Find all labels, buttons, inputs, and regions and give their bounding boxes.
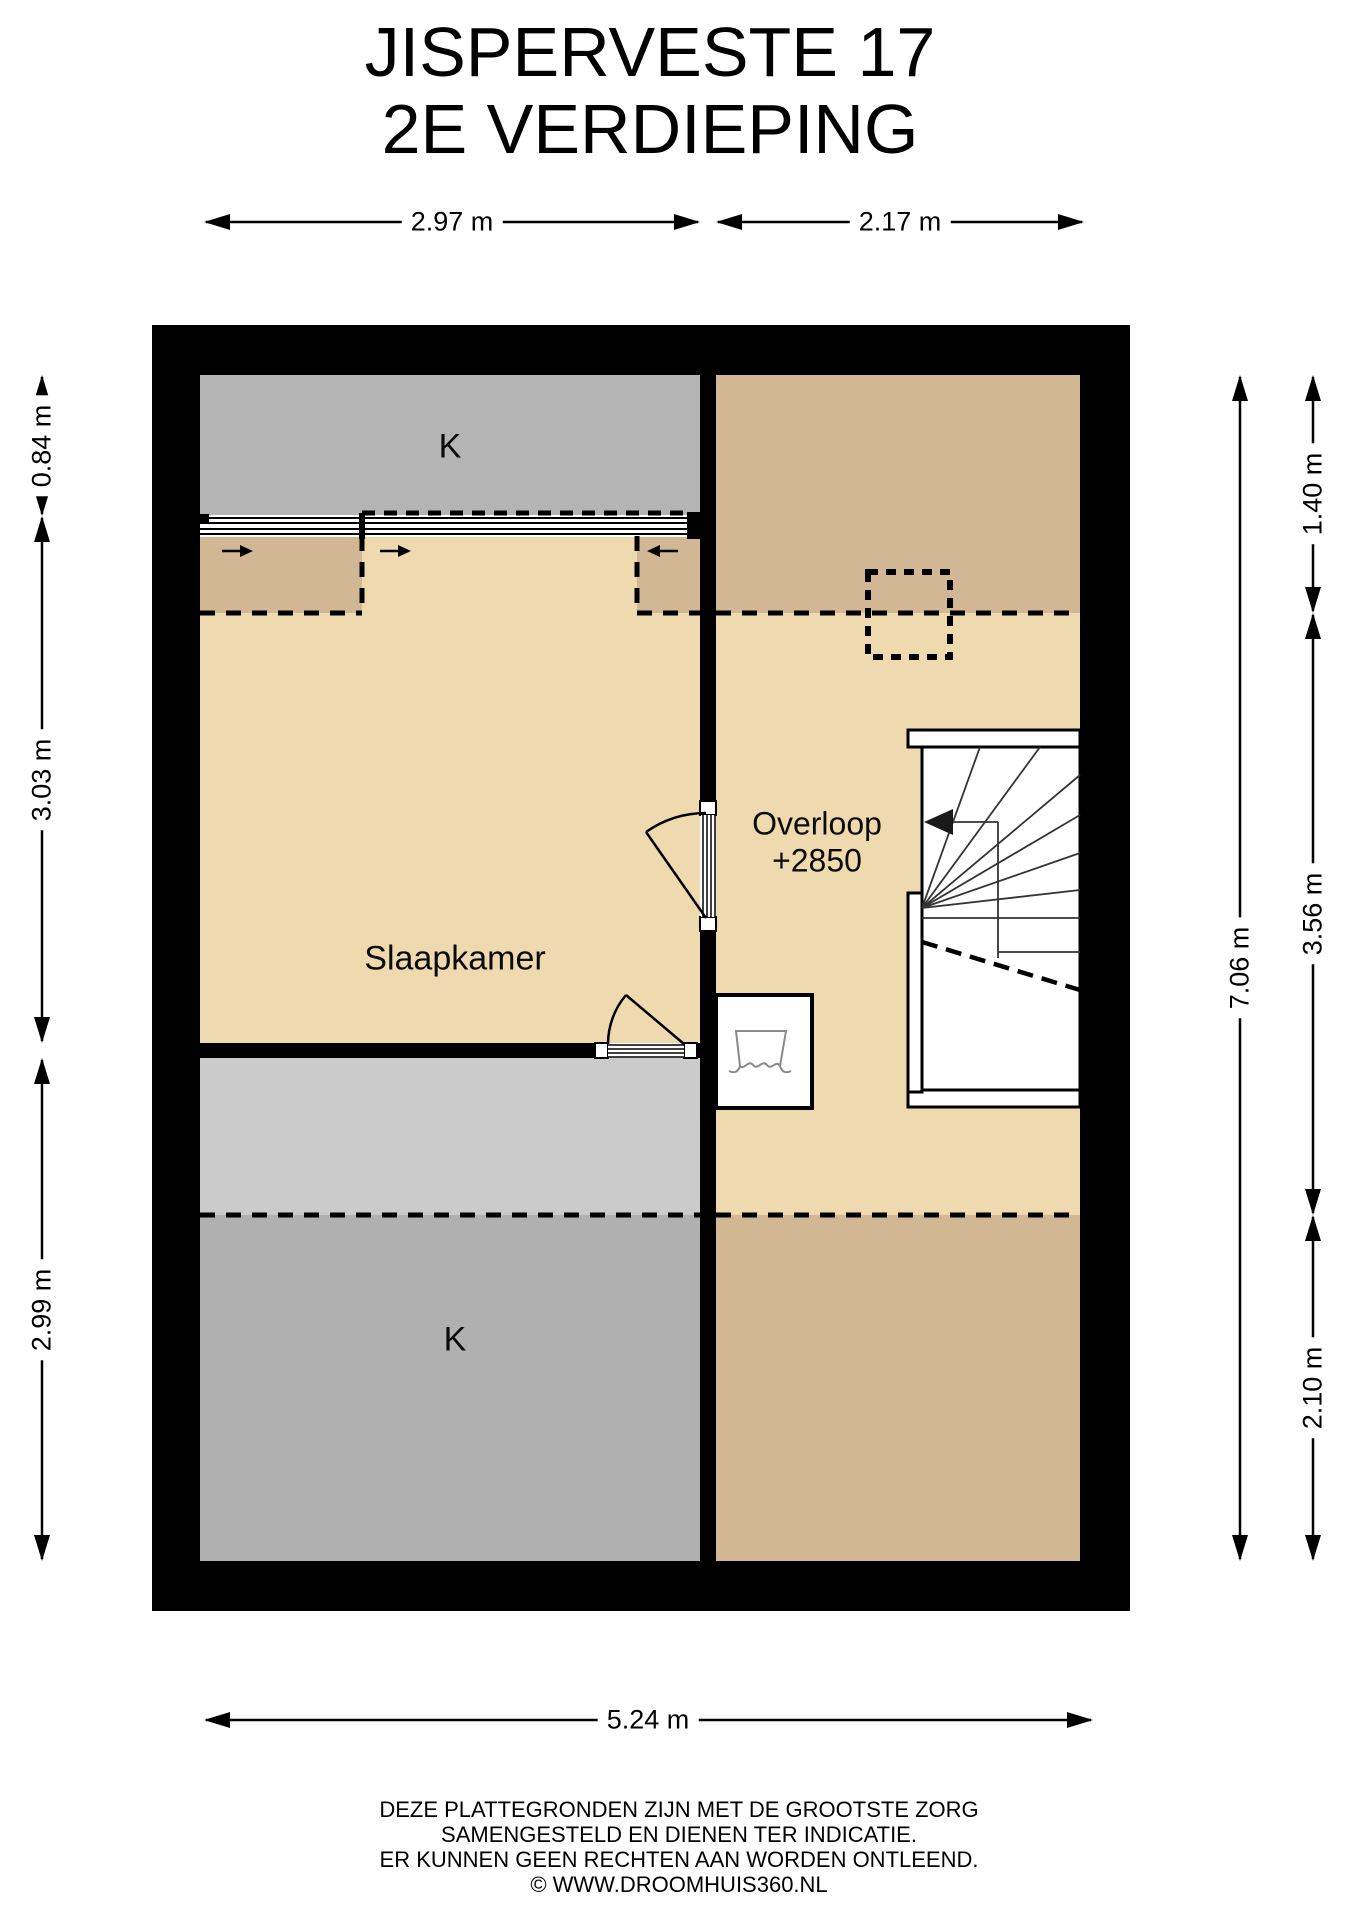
dim-left-segment1: 0.84 m (27, 396, 58, 497)
room-label-k-top: K (439, 428, 462, 467)
door-swing (646, 813, 706, 918)
center-wall (700, 375, 716, 1561)
center-wall-door (646, 801, 716, 931)
bedroom-storage-door (595, 995, 697, 1058)
dim-left-segment3: 2.99 m (27, 1260, 58, 1361)
sink-fixture (716, 995, 812, 1108)
plan-linework (0, 0, 1358, 1920)
floorplan-page: JISPERVESTE 17 2E VERDIEPING (0, 0, 1358, 1920)
copyright-line: © WWW.DROOMHUIS360.NL (0, 1872, 1358, 1897)
slope-direction-arrows (222, 545, 678, 557)
dim-right-total: 7.06 m (1225, 918, 1256, 1019)
disclaimer-line: DEZE PLATTEGRONDEN ZIJN MET DE GROOTSTE … (0, 1797, 1358, 1822)
dim-top-left-width: 2.97 m (402, 207, 503, 238)
dim-right-segment2: 3.56 m (1298, 864, 1329, 965)
dim-right-segment1: 1.40 m (1298, 444, 1329, 545)
disclaimer-line: SAMENGESTELD EN DIENEN TER INDICATIE. (0, 1822, 1358, 1847)
headroom-dashed-lines-bedroom (200, 536, 700, 613)
staircase (908, 730, 1080, 1107)
room-label-overloop-level: +2850 (772, 843, 862, 880)
room-label-slaapkamer: Slaapkamer (364, 940, 545, 979)
dim-bottom-width: 5.24 m (598, 1705, 699, 1736)
door-swing (608, 995, 684, 1044)
disclaimer-line: ER KUNNEN GEEN RECHTEN AAN WORDEN ONTLEE… (0, 1847, 1358, 1872)
dormer-window-band (200, 512, 700, 539)
room-label-overloop: Overloop (752, 806, 882, 843)
dim-top-right-width: 2.17 m (850, 207, 951, 238)
room-label-k-bottom: K (444, 1321, 467, 1360)
dim-left-segment2: 3.03 m (27, 730, 58, 831)
dim-right-segment3: 2.10 m (1298, 1338, 1329, 1439)
disclaimer: DEZE PLATTEGRONDEN ZIJN MET DE GROOTSTE … (0, 1797, 1358, 1897)
